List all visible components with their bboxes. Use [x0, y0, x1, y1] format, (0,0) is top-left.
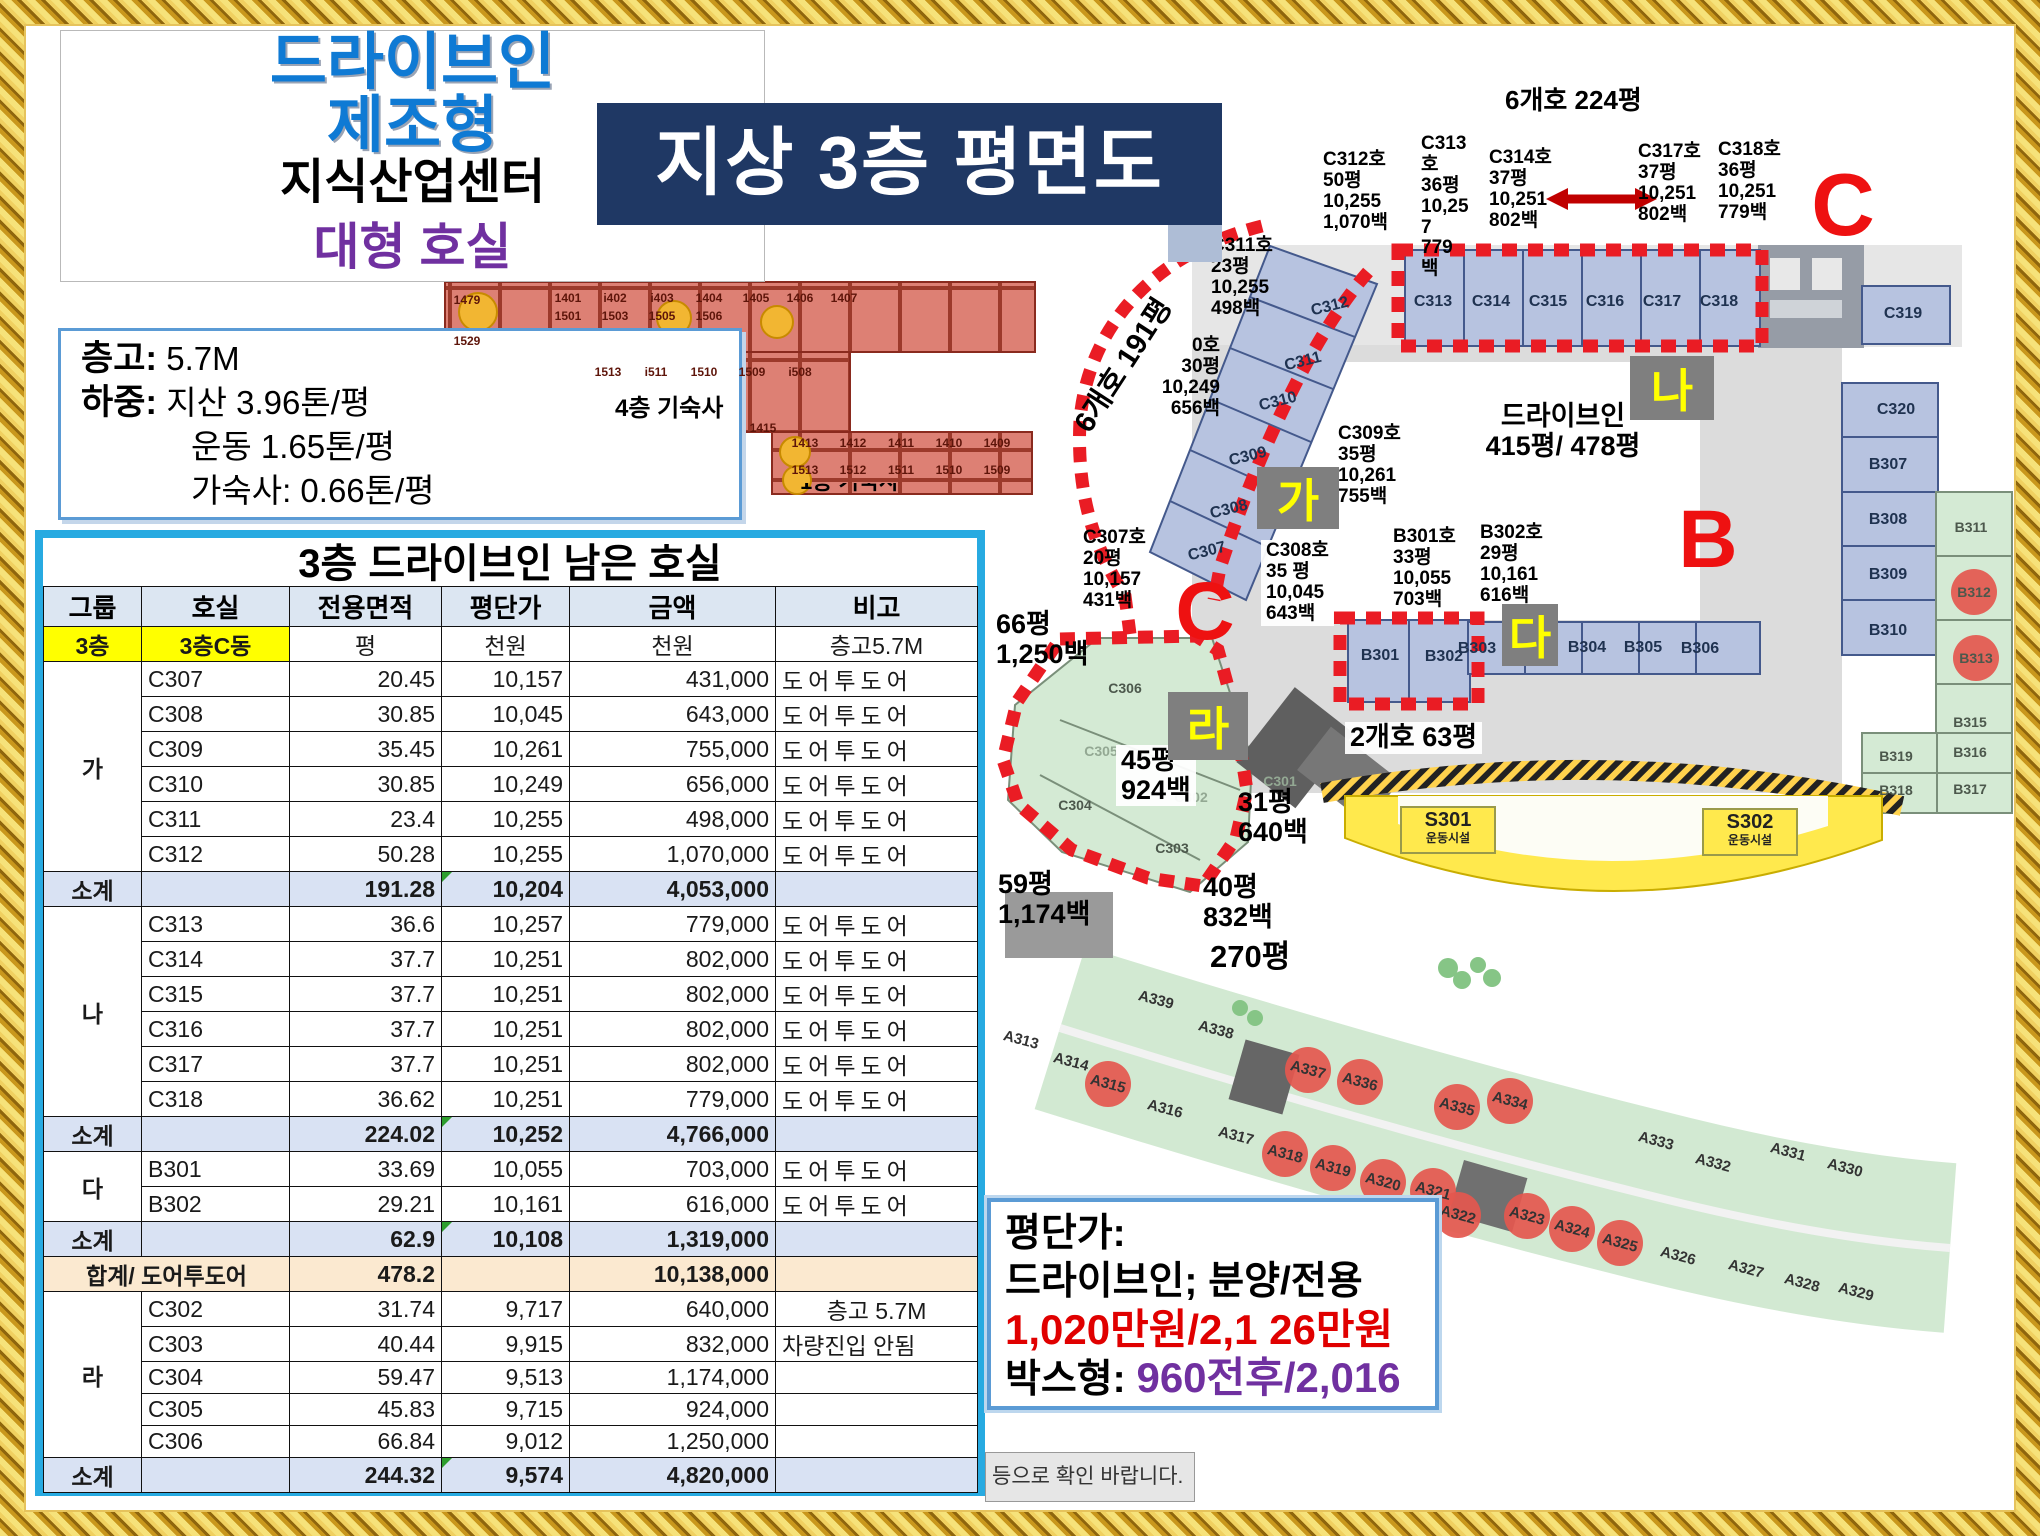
- table-cell: 616,000: [570, 1187, 776, 1222]
- box-type-label: 박스형:: [1005, 1358, 1136, 1401]
- table-cell: 도어투도어: [776, 732, 978, 767]
- table-cell: 10,157: [442, 662, 570, 697]
- table-cell: 10,251: [442, 977, 570, 1012]
- table-cell: C311: [142, 802, 290, 837]
- column-header: 평단가: [442, 587, 570, 627]
- table-cell: 10,251: [442, 1012, 570, 1047]
- table-row: C31123.410,255498,000도어투도어: [44, 802, 978, 837]
- table-cell: 23.4: [290, 802, 442, 837]
- load-value: 지산 3.96톤/평: [157, 384, 370, 421]
- price-title: 평단가:: [1005, 1210, 1421, 1258]
- table-row: C30545.839,715924,000: [44, 1394, 978, 1426]
- table-cell: C310: [142, 767, 290, 802]
- table-cell: C308: [142, 697, 290, 732]
- table-cell: 640,000: [570, 1292, 776, 1327]
- table-row: 라C30231.749,717640,000층고 5.7M: [44, 1292, 978, 1327]
- column-header: 호실: [142, 587, 290, 627]
- room-size-class: 대형 호실: [61, 222, 764, 273]
- table-cell: 평: [290, 627, 442, 662]
- table-cell: 20.45: [290, 662, 442, 697]
- table-cell: 9,513: [442, 1362, 570, 1394]
- table-cell: 40.44: [290, 1327, 442, 1362]
- table-cell: 36.6: [290, 907, 442, 942]
- table-cell: 도어투도어: [776, 697, 978, 732]
- table-cell: 도어투도어: [776, 767, 978, 802]
- table-cell: 소계: [44, 1222, 142, 1257]
- table-cell: 도어투도어: [776, 837, 978, 872]
- table-cell: 도어투도어: [776, 942, 978, 977]
- table-title: 3층 드라이브인 남은 호실: [43, 538, 977, 586]
- table-cell: 802,000: [570, 977, 776, 1012]
- table-cell: 10,138,000: [570, 1257, 776, 1292]
- load-value-3: 가숙사: 0.66톤/평: [81, 469, 739, 513]
- table-row: 소계224.0210,2524,766,000: [44, 1117, 978, 1152]
- table-cell: C316: [142, 1012, 290, 1047]
- table-cell: 802,000: [570, 942, 776, 977]
- flyer-page: C313C314C315C316C317C318C319C312C311C310…: [0, 0, 2040, 1536]
- table-cell: 802,000: [570, 1047, 776, 1082]
- table-cell: 4,766,000: [570, 1117, 776, 1152]
- table-cell: [776, 1458, 978, 1493]
- table-cell: 10,257: [442, 907, 570, 942]
- table-cell: 10,255: [442, 802, 570, 837]
- table-cell: 779,000: [570, 907, 776, 942]
- table-cell: 478.2: [290, 1257, 442, 1292]
- table-cell: 9,717: [442, 1292, 570, 1327]
- table-cell: 10,045: [442, 697, 570, 732]
- table-cell: 도어투도어: [776, 1047, 978, 1082]
- table-cell: 도어투도어: [776, 977, 978, 1012]
- table-row: 소계191.2810,2044,053,000: [44, 872, 978, 907]
- table-cell: 다: [44, 1152, 142, 1222]
- table-cell: 소계: [44, 1458, 142, 1493]
- spec-box: 층고: 5.7M 하중: 지산 3.96톤/평 운동 1.65톤/평 가숙사: …: [58, 328, 742, 520]
- table-cell: 33.69: [290, 1152, 442, 1187]
- table-cell: 66.84: [290, 1426, 442, 1458]
- table-cell: C306: [142, 1426, 290, 1458]
- table-row: 가C30720.4510,157431,000도어투도어: [44, 662, 978, 697]
- table-cell: 소계: [44, 1117, 142, 1152]
- table-cell: 10,252: [442, 1117, 570, 1152]
- table-row: 소계62.910,1081,319,000: [44, 1222, 978, 1257]
- table-cell: 9,012: [442, 1426, 570, 1458]
- table-cell: C317: [142, 1047, 290, 1082]
- table-cell: 도어투도어: [776, 1187, 978, 1222]
- table-cell: [776, 1394, 978, 1426]
- table-cell: C304: [142, 1362, 290, 1394]
- table-cell: 라: [44, 1292, 142, 1458]
- table-cell: C309: [142, 732, 290, 767]
- table-row: C31836.6210,251779,000도어투도어: [44, 1082, 978, 1117]
- table-cell: 9,915: [442, 1327, 570, 1362]
- table-cell: 755,000: [570, 732, 776, 767]
- table-cell: 9,715: [442, 1394, 570, 1426]
- table-cell: [776, 1222, 978, 1257]
- table-cell: B302: [142, 1187, 290, 1222]
- table-cell: 가: [44, 662, 142, 872]
- table-row: C31030.8510,249656,000도어투도어: [44, 767, 978, 802]
- drivein-price: 1,020만원/2,1 26만원: [1005, 1306, 1421, 1354]
- table-cell: 3층C동: [142, 627, 290, 662]
- banner-shadow: [1168, 225, 1222, 262]
- table-row: B30229.2110,161616,000도어투도어: [44, 1187, 978, 1222]
- arrow-icon: [1546, 188, 1657, 210]
- table-row: 3층3층C동평천원천원층고5.7M: [44, 627, 978, 662]
- column-header: 전용면적: [290, 587, 442, 627]
- table-cell: [142, 872, 290, 907]
- table-cell: 도어투도어: [776, 1082, 978, 1117]
- table-cell: 10,249: [442, 767, 570, 802]
- table-cell: 도어투도어: [776, 802, 978, 837]
- table-cell: 10,251: [442, 942, 570, 977]
- table-cell: 9,574: [442, 1458, 570, 1493]
- table-cell: 10,251: [442, 1082, 570, 1117]
- table-cell: C313: [142, 907, 290, 942]
- table-row: C31637.710,251802,000도어투도어: [44, 1012, 978, 1047]
- table-cell: [776, 1257, 978, 1292]
- table-cell: 층고5.7M: [776, 627, 978, 662]
- table-cell: C315: [142, 977, 290, 1012]
- table-cell: 1,070,000: [570, 837, 776, 872]
- table-cell: 36.62: [290, 1082, 442, 1117]
- table-row: C30459.479,5131,174,000: [44, 1362, 978, 1394]
- table-cell: 191.28: [290, 872, 442, 907]
- table-cell: 10,055: [442, 1152, 570, 1187]
- rooms-table: 그룹호실전용면적평단가금액비고 3층3층C동평천원천원층고5.7M가C30720…: [43, 586, 978, 1493]
- table-cell: 45.83: [290, 1394, 442, 1426]
- table-cell: 3층: [44, 627, 142, 662]
- table-row: C31437.710,251802,000도어투도어: [44, 942, 978, 977]
- table-header-row: 그룹호실전용면적평단가금액비고: [44, 587, 978, 627]
- table-cell: 10,255: [442, 837, 570, 872]
- table-cell: C305: [142, 1394, 290, 1426]
- table-row: C30340.449,915832,000차량진입 안됨: [44, 1327, 978, 1362]
- table-cell: 703,000: [570, 1152, 776, 1187]
- table-cell: 30.85: [290, 697, 442, 732]
- table-cell: 62.9: [290, 1222, 442, 1257]
- table-row: 나C31336.610,257779,000도어투도어: [44, 907, 978, 942]
- table-cell: 10,261: [442, 732, 570, 767]
- remaining-rooms-table: 3층 드라이브인 남은 호실 그룹호실전용면적평단가금액비고 3층3층C동평천원…: [35, 530, 985, 1496]
- table-cell: C318: [142, 1082, 290, 1117]
- table-cell: [142, 1117, 290, 1152]
- table-cell: 431,000: [570, 662, 776, 697]
- table-cell: 779,000: [570, 1082, 776, 1117]
- table-cell: 643,000: [570, 697, 776, 732]
- table-cell: 10,108: [442, 1222, 570, 1257]
- table-cell: 37.7: [290, 1012, 442, 1047]
- table-cell: C312: [142, 837, 290, 872]
- ceiling-value: 5.7M: [157, 340, 240, 377]
- table-cell: 도어투도어: [776, 1152, 978, 1187]
- table-cell: 498,000: [570, 802, 776, 837]
- table-cell: 1,319,000: [570, 1222, 776, 1257]
- table-row: C30830.8510,045643,000도어투도어: [44, 697, 978, 732]
- table-cell: 224.02: [290, 1117, 442, 1152]
- table-row: C31250.2810,2551,070,000도어투도어: [44, 837, 978, 872]
- table-cell: C302: [142, 1292, 290, 1327]
- page-title: 지상 3층 평면도: [597, 103, 1222, 225]
- table-cell: 10,161: [442, 1187, 570, 1222]
- table-cell: [776, 1117, 978, 1152]
- table-row: C31737.710,251802,000도어투도어: [44, 1047, 978, 1082]
- table-row: 다B30133.6910,055703,000도어투도어: [44, 1152, 978, 1187]
- ceiling-label: 층고:: [81, 339, 157, 378]
- table-cell: 37.7: [290, 1047, 442, 1082]
- disclaimer-note: 등으로 확인 바랍니다.: [985, 1452, 1195, 1502]
- product-type-line1: 드라이브인: [61, 31, 764, 94]
- table-cell: C303: [142, 1327, 290, 1362]
- table-cell: 50.28: [290, 837, 442, 872]
- table-row: 합계/ 도어투도어478.210,138,000: [44, 1257, 978, 1292]
- table-cell: 도어투도어: [776, 662, 978, 697]
- table-cell: 656,000: [570, 767, 776, 802]
- table-cell: 천원: [570, 627, 776, 662]
- table-cell: [142, 1458, 290, 1493]
- table-cell: 37.7: [290, 942, 442, 977]
- table-cell: B301: [142, 1152, 290, 1187]
- table-cell: 도어투도어: [776, 1012, 978, 1047]
- table-cell: 35.45: [290, 732, 442, 767]
- table-cell: 천원: [442, 627, 570, 662]
- table-cell: 나: [44, 907, 142, 1117]
- table-cell: 도어투도어: [776, 907, 978, 942]
- table-cell: [776, 872, 978, 907]
- table-cell: 802,000: [570, 1012, 776, 1047]
- table-cell: 10,204: [442, 872, 570, 907]
- table-cell: C307: [142, 662, 290, 697]
- price-subtitle: 드라이브인; 분양/전용: [1005, 1258, 1421, 1306]
- load-value-2: 운동 1.65톤/평: [81, 425, 739, 469]
- table-cell: 차량진입 안됨: [776, 1327, 978, 1362]
- table-cell: 30.85: [290, 767, 442, 802]
- table-cell: [776, 1426, 978, 1458]
- load-label: 하중:: [81, 383, 157, 422]
- table-row: 소계244.329,5744,820,000: [44, 1458, 978, 1493]
- table-cell: 37.7: [290, 977, 442, 1012]
- column-header: 그룹: [44, 587, 142, 627]
- table-cell: 10,251: [442, 1047, 570, 1082]
- table-cell: 합계/ 도어투도어: [44, 1257, 290, 1292]
- table-cell: C314: [142, 942, 290, 977]
- table-row: C31537.710,251802,000도어투도어: [44, 977, 978, 1012]
- table-cell: 59.47: [290, 1362, 442, 1394]
- column-header: 비고: [776, 587, 978, 627]
- table-cell: 244.32: [290, 1458, 442, 1493]
- table-cell: 층고 5.7M: [776, 1292, 978, 1327]
- table-cell: 31.74: [290, 1292, 442, 1327]
- column-header: 금액: [570, 587, 776, 627]
- table-row: C30666.849,0121,250,000: [44, 1426, 978, 1458]
- table-row: C30935.4510,261755,000도어투도어: [44, 732, 978, 767]
- table-cell: 924,000: [570, 1394, 776, 1426]
- table-cell: [142, 1222, 290, 1257]
- table-cell: 소계: [44, 872, 142, 907]
- table-cell: [776, 1362, 978, 1394]
- table-cell: 1,250,000: [570, 1426, 776, 1458]
- table-cell: 4,820,000: [570, 1458, 776, 1493]
- table-cell: 832,000: [570, 1327, 776, 1362]
- table-cell: 4,053,000: [570, 872, 776, 907]
- table-cell: 29.21: [290, 1187, 442, 1222]
- price-summary-box: 평단가: 드라이브인; 분양/전용 1,020만원/2,1 26만원 박스형: …: [987, 1198, 1439, 1410]
- table-cell: [442, 1257, 570, 1292]
- box-type-price: 960전후/2,016: [1136, 1354, 1400, 1401]
- table-cell: 1,174,000: [570, 1362, 776, 1394]
